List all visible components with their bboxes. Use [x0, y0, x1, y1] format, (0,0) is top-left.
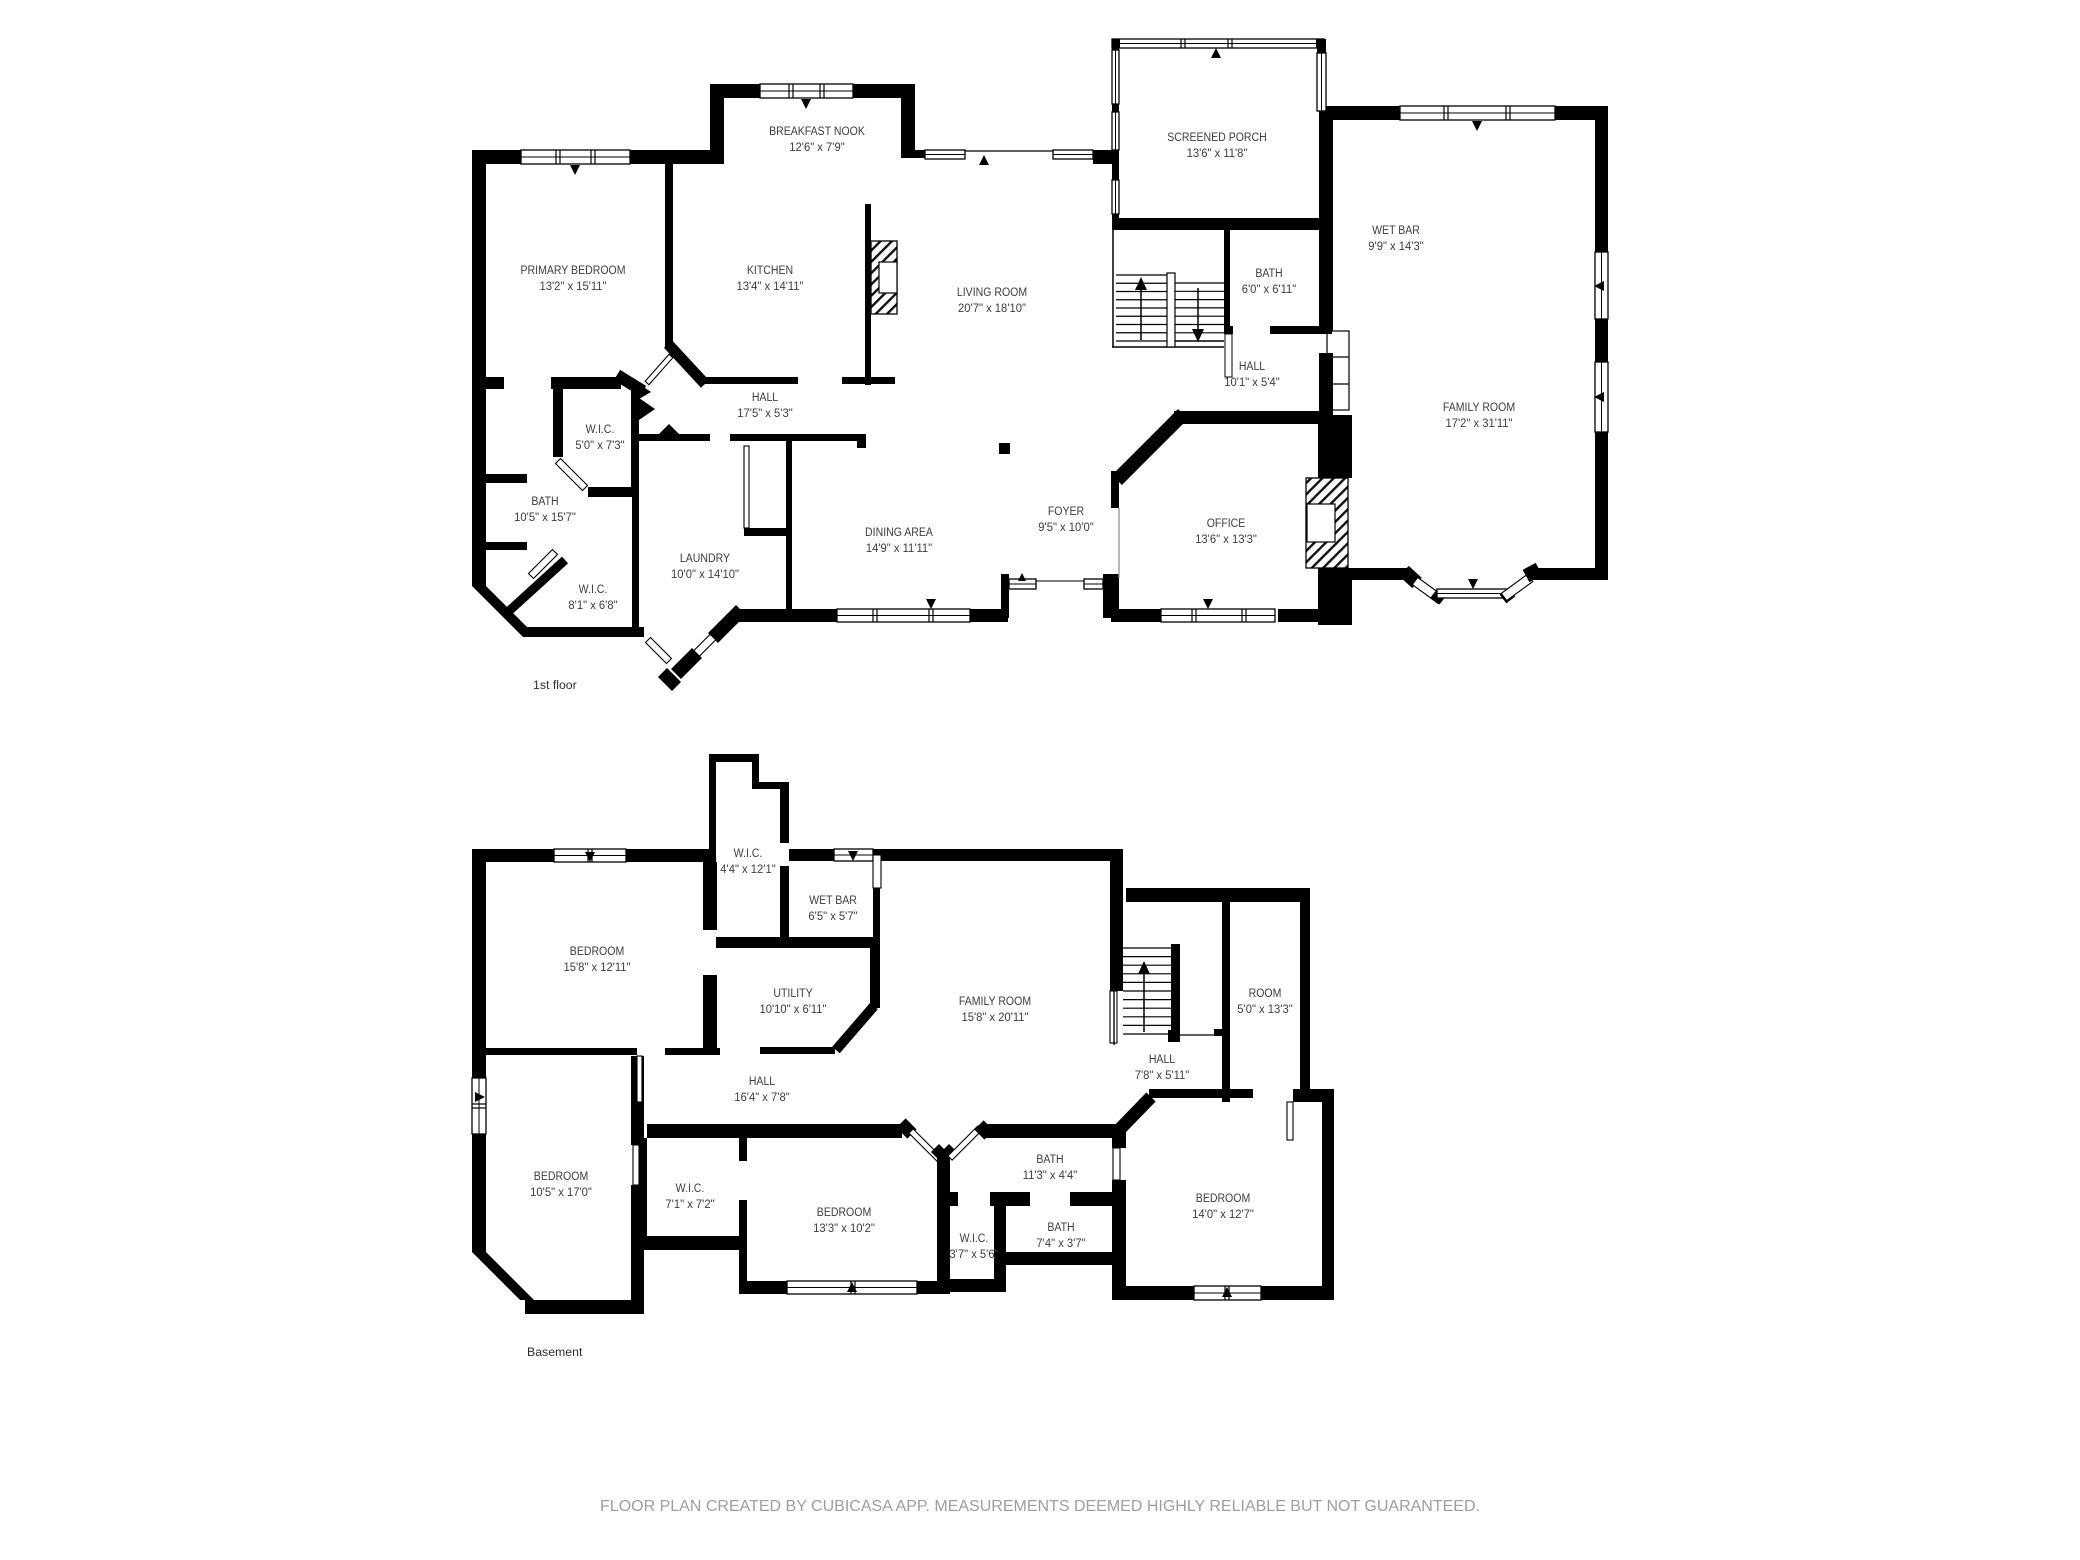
svg-text:3'7" x 5'6": 3'7" x 5'6" — [949, 1248, 998, 1261]
svg-text:HALL: HALL — [1239, 360, 1266, 373]
svg-text:14'9" x 11'11": 14'9" x 11'11" — [866, 542, 932, 555]
svg-text:10'5" x 15'7": 10'5" x 15'7" — [514, 511, 576, 524]
svg-text:12'6" x 7'9": 12'6" x 7'9" — [789, 141, 844, 154]
svg-text:PRIMARY BEDROOM: PRIMARY BEDROOM — [521, 264, 626, 277]
svg-text:OFFICE: OFFICE — [1207, 517, 1246, 530]
svg-text:10'1" x 5'4": 10'1" x 5'4" — [1224, 376, 1279, 389]
svg-text:6'0" x 6'11": 6'0" x 6'11" — [1242, 283, 1297, 296]
svg-text:BEDROOM: BEDROOM — [534, 1170, 588, 1183]
svg-text:BEDROOM: BEDROOM — [570, 945, 624, 958]
svg-text:16'4" x 7'8": 16'4" x 7'8" — [734, 1091, 789, 1104]
svg-text:Basement: Basement — [527, 1345, 583, 1359]
svg-text:4'4" x 12'1": 4'4" x 12'1" — [720, 863, 775, 876]
svg-text:6'5" x 5'7": 6'5" x 5'7" — [808, 910, 857, 923]
svg-text:W.I.C.: W.I.C. — [734, 847, 763, 860]
svg-text:WET BAR: WET BAR — [809, 894, 857, 907]
svg-text:W.I.C.: W.I.C. — [676, 1182, 705, 1195]
svg-text:20'7" x 18'10": 20'7" x 18'10" — [958, 302, 1026, 315]
svg-text:WET BAR: WET BAR — [1372, 224, 1420, 237]
svg-text:BATH: BATH — [1047, 1221, 1074, 1234]
svg-text:ROOM: ROOM — [1249, 987, 1282, 1000]
svg-text:10'0" x 14'10": 10'0" x 14'10" — [671, 568, 739, 581]
svg-text:15'8" x 20'11": 15'8" x 20'11" — [961, 1011, 1028, 1024]
svg-text:BREAKFAST NOOK: BREAKFAST NOOK — [769, 125, 865, 138]
svg-text:17'2" x 31'11": 17'2" x 31'11" — [1445, 417, 1512, 430]
svg-text:9'5" x 10'0": 9'5" x 10'0" — [1038, 521, 1093, 534]
svg-text:13'3" x 10'2": 13'3" x 10'2" — [813, 1222, 875, 1235]
svg-text:FAMILY ROOM: FAMILY ROOM — [1443, 401, 1515, 414]
svg-text:13'4" x 14'11": 13'4" x 14'11" — [736, 280, 803, 293]
svg-text:HALL: HALL — [752, 391, 779, 404]
svg-text:W.I.C.: W.I.C. — [960, 1232, 989, 1245]
svg-text:15'8" x 12'11": 15'8" x 12'11" — [563, 961, 630, 974]
svg-text:BATH: BATH — [1036, 1153, 1063, 1166]
svg-text:5'0" x 13'3": 5'0" x 13'3" — [1237, 1003, 1292, 1016]
svg-text:FLOOR PLAN CREATED BY CUBICASA: FLOOR PLAN CREATED BY CUBICASA APP. MEAS… — [600, 1498, 1480, 1515]
svg-text:KITCHEN: KITCHEN — [747, 264, 793, 277]
svg-text:7'4" x 3'7": 7'4" x 3'7" — [1036, 1237, 1085, 1250]
svg-text:7'1" x 7'2": 7'1" x 7'2" — [665, 1198, 714, 1211]
svg-text:11'3" x 4'4": 11'3" x 4'4" — [1023, 1169, 1078, 1182]
svg-text:BATH: BATH — [1255, 267, 1282, 280]
svg-text:9'9" x 14'3": 9'9" x 14'3" — [1368, 240, 1423, 253]
svg-text:HALL: HALL — [1149, 1053, 1176, 1066]
svg-text:W.I.C.: W.I.C. — [586, 423, 615, 436]
svg-text:13'2" x 15'11": 13'2" x 15'11" — [539, 280, 606, 293]
svg-text:5'0" x 7'3": 5'0" x 7'3" — [575, 439, 624, 452]
svg-text:13'6" x 13'3": 13'6" x 13'3" — [1195, 533, 1257, 546]
svg-text:SCREENED PORCH: SCREENED PORCH — [1167, 131, 1267, 144]
svg-text:UTILITY: UTILITY — [773, 987, 813, 1000]
svg-text:13'6" x 11'8": 13'6" x 11'8" — [1187, 147, 1248, 160]
svg-text:17'5" x 5'3": 17'5" x 5'3" — [737, 407, 792, 420]
svg-text:1st floor: 1st floor — [533, 678, 577, 692]
svg-text:HALL: HALL — [749, 1075, 776, 1088]
svg-text:DINING AREA: DINING AREA — [865, 526, 933, 539]
svg-text:10'5" x 17'0": 10'5" x 17'0" — [530, 1186, 592, 1199]
svg-text:FAMILY ROOM: FAMILY ROOM — [959, 995, 1031, 1008]
svg-text:14'0" x 12'7": 14'0" x 12'7" — [1192, 1208, 1254, 1221]
svg-text:7'8" x 5'11": 7'8" x 5'11" — [1135, 1069, 1190, 1082]
svg-text:LIVING ROOM: LIVING ROOM — [957, 286, 1027, 299]
svg-text:8'1" x 6'8": 8'1" x 6'8" — [568, 599, 617, 612]
svg-text:LAUNDRY: LAUNDRY — [680, 552, 730, 565]
svg-text:FOYER: FOYER — [1048, 505, 1084, 518]
svg-text:BEDROOM: BEDROOM — [817, 1206, 871, 1219]
svg-text:BATH: BATH — [531, 495, 558, 508]
svg-text:BEDROOM: BEDROOM — [1196, 1192, 1250, 1205]
svg-text:W.I.C.: W.I.C. — [579, 583, 608, 596]
svg-text:10'10" x 6'11": 10'10" x 6'11" — [759, 1003, 826, 1016]
